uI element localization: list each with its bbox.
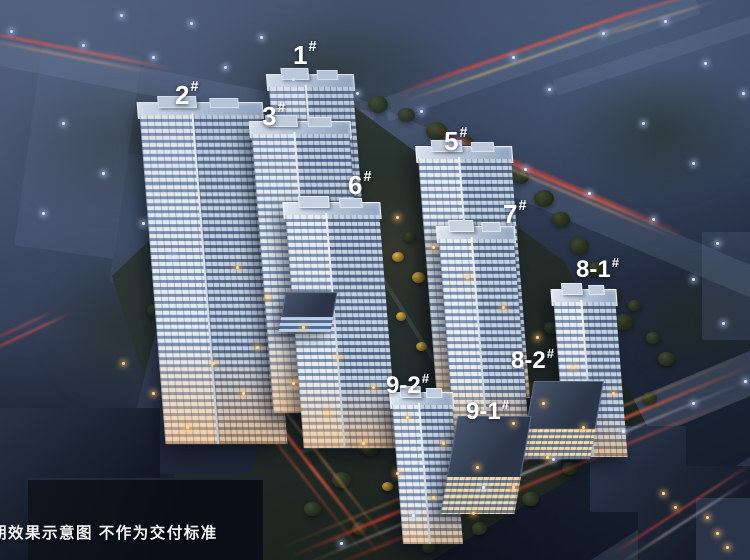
street-light <box>120 14 123 17</box>
park-light <box>572 366 575 369</box>
street-light <box>152 56 155 59</box>
park-light <box>292 382 295 385</box>
street-light <box>722 322 725 325</box>
park-light <box>406 416 409 419</box>
building-label-5: 5# <box>444 128 467 154</box>
street-light <box>62 122 65 125</box>
building-roof <box>447 416 532 479</box>
street-light <box>524 168 527 171</box>
building-number: 1 <box>293 40 307 70</box>
park-light <box>662 492 665 495</box>
street-light <box>292 78 295 81</box>
street-light <box>642 122 645 125</box>
building-label-7: 7# <box>503 201 526 227</box>
street-light <box>512 56 515 59</box>
park-light <box>612 392 615 395</box>
clubhouse-roof <box>281 292 338 319</box>
hash-mark: # <box>459 125 467 141</box>
tree <box>534 190 554 207</box>
tree <box>570 238 589 254</box>
park-light <box>236 266 239 269</box>
park-light <box>542 402 545 405</box>
hash-mark: # <box>190 79 198 95</box>
building-label-3: 3# <box>262 103 285 129</box>
building-label-8-1: 8-1# <box>576 258 619 282</box>
building-number: 9-1 <box>466 398 501 425</box>
tree <box>396 312 406 321</box>
park-light <box>302 326 305 329</box>
street-light <box>622 430 625 433</box>
street-light <box>704 62 707 65</box>
street-light <box>172 256 175 259</box>
park-light <box>706 516 709 519</box>
park-light <box>466 276 469 279</box>
building-number: 2 <box>175 80 189 110</box>
building-label-6: 6# <box>348 172 371 198</box>
street-light <box>482 486 485 489</box>
street-light <box>260 36 263 39</box>
park-light <box>582 426 585 429</box>
hash-mark: # <box>277 100 285 116</box>
building-number: 8-2 <box>511 347 546 374</box>
hash-mark: # <box>422 371 429 386</box>
clubhouse <box>278 292 337 332</box>
street-light <box>102 172 105 175</box>
park-light <box>326 412 329 415</box>
park-light <box>212 362 215 365</box>
street-light <box>82 44 85 47</box>
building-8-2 <box>520 381 604 459</box>
street-light <box>692 162 695 165</box>
hash-mark: # <box>518 198 526 214</box>
park-light <box>396 472 399 475</box>
hash-mark: # <box>612 255 619 270</box>
park-light <box>502 306 505 309</box>
building-label-9-1: 9-1# <box>466 400 509 424</box>
tree <box>472 522 487 535</box>
park-light <box>152 392 155 395</box>
building-number: 6 <box>348 170 362 200</box>
park-light <box>512 486 515 489</box>
street-light <box>692 278 695 281</box>
park-light <box>256 346 259 349</box>
park-light <box>726 546 729 549</box>
building-label-9-2: 9-2# <box>386 374 429 398</box>
street-light <box>552 458 555 461</box>
street-light <box>652 218 655 221</box>
park-light <box>476 466 479 469</box>
street-light <box>412 514 415 517</box>
street-light <box>742 92 745 95</box>
building-number: 8-1 <box>576 256 611 283</box>
building-number: 7 <box>503 199 517 229</box>
hash-mark: # <box>363 169 371 185</box>
building-label-2: 2# <box>175 82 198 108</box>
street-light <box>224 66 227 69</box>
aerial-night-rendering: 1# 2# 3# 5# 6# 7# 8-1# 8-2# 9-2# 9-1# 期效… <box>0 0 750 560</box>
tree <box>412 272 425 283</box>
street-light <box>10 30 13 33</box>
street-light <box>588 192 591 195</box>
street-light <box>744 380 747 383</box>
park-light <box>432 496 435 499</box>
street-light <box>190 22 193 25</box>
hash-mark: # <box>502 397 509 412</box>
park-light <box>186 426 189 429</box>
park-light <box>432 246 435 249</box>
street-light <box>692 402 695 405</box>
hash-mark: # <box>308 39 316 55</box>
park-light <box>266 296 269 299</box>
park-light <box>512 422 515 425</box>
building-wall <box>440 477 521 514</box>
hash-mark: # <box>547 346 554 361</box>
building-number: 3 <box>262 101 276 131</box>
park-light <box>396 216 399 219</box>
building-number: 9-2 <box>386 372 421 399</box>
street-light <box>142 222 145 225</box>
park-light <box>362 442 365 445</box>
tree <box>628 300 641 311</box>
street-light <box>664 20 667 23</box>
park-light <box>336 356 339 359</box>
street-light <box>420 110 423 113</box>
building-label-1: 1# <box>293 42 316 68</box>
park-light <box>674 506 677 509</box>
tree <box>368 96 388 113</box>
street-light <box>42 212 45 215</box>
clubhouse-wall <box>278 317 333 332</box>
park-light <box>716 532 719 535</box>
disclaimer-caption: 期效果示意图 不作为交付标准 <box>0 521 218 543</box>
park-light <box>442 442 445 445</box>
building-wall <box>520 429 595 459</box>
tree <box>646 332 660 344</box>
park-light <box>546 456 549 459</box>
building-number: 5 <box>444 126 458 156</box>
park-light <box>122 362 125 365</box>
park-light <box>372 386 375 389</box>
dark-building <box>28 478 263 560</box>
park-light <box>536 336 539 339</box>
street-light <box>340 542 343 545</box>
park-light <box>242 392 245 395</box>
building-label-8-2: 8-2# <box>511 349 554 373</box>
street-light <box>602 32 605 35</box>
street-light <box>548 88 551 91</box>
building-roof <box>525 381 604 431</box>
street-light <box>356 92 359 95</box>
park-light <box>472 512 475 515</box>
street-light <box>716 242 719 245</box>
